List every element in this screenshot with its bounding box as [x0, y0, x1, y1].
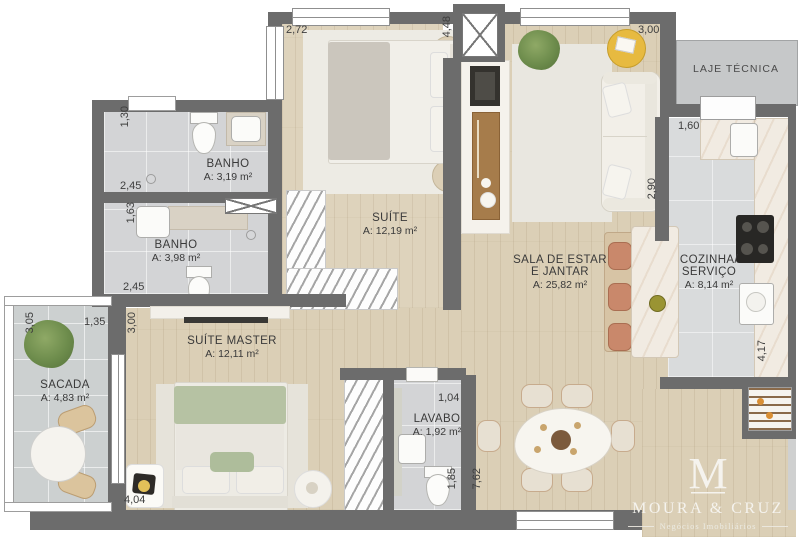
sacada-sliding-door — [111, 354, 125, 484]
room-name: SACADA — [15, 379, 115, 391]
banho1-sink — [231, 116, 261, 142]
dimension-label: 1,35 — [84, 316, 105, 328]
master-accent-pillow — [210, 452, 254, 472]
table-centerpiece — [551, 430, 571, 450]
dimension-label: 2,90 — [646, 178, 658, 199]
sacada-rail-bottom — [4, 502, 112, 512]
brand-name: MOURA & CRUZ — [616, 500, 800, 518]
dining-chair — [521, 384, 553, 408]
room-name: SERVIÇO — [650, 266, 768, 278]
room-label-sala: SALA DE ESTAR E JANTAR A: 25,82 m² — [490, 254, 630, 291]
brand-tagline: Negócios Imobiliários — [616, 521, 800, 531]
room-name: SUÍTE — [320, 212, 460, 224]
dimension-label: 2,45 — [120, 180, 141, 192]
sofa-armrest — [603, 72, 657, 84]
dimension-label: 4,48 — [441, 16, 453, 37]
svg-text:M: M — [688, 449, 727, 498]
washer-door — [746, 292, 766, 312]
room-area: A: 12,11 m² — [152, 348, 312, 360]
wall — [443, 58, 461, 310]
room-label-cozinha: COZINHA/ SERVIÇO A: 8,14 m² — [650, 254, 768, 291]
dimension-label: 7,62 — [471, 468, 483, 489]
island-stool — [608, 323, 632, 351]
room-label-banho1: BANHO A: 3,19 m² — [168, 158, 288, 183]
dimension-label: 4,17 — [756, 340, 768, 361]
dining-chair — [561, 384, 593, 408]
tv-cabinet-knob — [481, 178, 491, 188]
dimension-label: 1,04 — [438, 392, 459, 404]
grill-ember — [766, 412, 773, 419]
master-bed-throw — [174, 386, 286, 424]
master-headboard — [172, 496, 288, 508]
room-name: SUÍTE MASTER — [152, 335, 312, 347]
room-label-suite: SUÍTE A: 12,19 m² — [320, 212, 460, 237]
room-name: SALA DE ESTAR — [490, 254, 630, 266]
wall — [383, 380, 394, 510]
banho1-window — [128, 96, 176, 111]
sacada-rail-left — [4, 296, 14, 512]
wall — [788, 104, 796, 390]
brand-tagline-text: Negócios Imobiliários — [660, 521, 757, 531]
island-plant-bowl — [649, 295, 666, 312]
wall — [340, 368, 466, 380]
duct-shaft-symbol — [462, 13, 498, 57]
tv-cabinet-handle — [477, 120, 479, 178]
room-name: E JANTAR — [490, 266, 630, 278]
room-area: A: 4,83 m² — [15, 392, 115, 404]
sacada-rail-top — [4, 296, 112, 306]
grill-ember — [757, 398, 764, 405]
dimension-label: 3,05 — [24, 312, 36, 333]
living-rug — [512, 44, 612, 222]
brand-monogram-icon: M — [682, 448, 734, 500]
room-label-laje-tecnica: LAJE TÉCNICA — [676, 63, 796, 75]
kitchen-sink — [730, 123, 758, 157]
cooktop-burner — [757, 221, 769, 233]
room-name: BANHO — [168, 158, 288, 170]
room-name: LAJE TÉCNICA — [676, 63, 796, 75]
table-cup — [540, 424, 547, 431]
wall — [92, 100, 104, 204]
master-wardrobe — [344, 378, 385, 512]
room-label-suite-master: SUÍTE MASTER A: 12,11 m² — [152, 335, 312, 360]
banho2-cabinet — [225, 198, 277, 214]
living-plant — [518, 30, 560, 70]
dimension-label: 1,30 — [119, 106, 131, 127]
nightstand-right-decor — [306, 482, 318, 494]
room-area: A: 12,19 m² — [320, 225, 460, 237]
tv-screen-inner — [475, 72, 495, 100]
room-name: BANHO — [116, 239, 236, 251]
floor-plan: BANHO A: 3,19 m² BANHO A: 3,98 m² SUÍTE … — [0, 0, 800, 537]
brand-logo: M MOURA & CRUZ Negócios Imobiliários — [616, 448, 800, 536]
room-area: A: 3,98 m² — [116, 252, 236, 264]
table-cup — [570, 448, 577, 455]
room-label-banho2: BANHO A: 3,98 m² — [116, 239, 236, 264]
room-area: A: 25,82 m² — [490, 279, 630, 291]
wall — [92, 203, 104, 306]
dining-chair — [477, 420, 501, 452]
sacada-table — [30, 426, 86, 482]
dimension-label: 2,72 — [286, 24, 307, 36]
room-area: A: 3,19 m² — [168, 171, 288, 183]
tagline-rule — [762, 526, 788, 527]
kitchen-island — [631, 226, 679, 358]
sofa-seam — [603, 136, 647, 137]
room-area: A: 1,92 m² — [394, 426, 480, 438]
living-window — [520, 8, 630, 26]
dimension-label: 4,04 — [124, 494, 145, 506]
suite-side-window — [266, 26, 284, 100]
master-tv — [184, 317, 268, 323]
room-label-sacada: SACADA A: 4,83 m² — [15, 379, 115, 404]
cooktop-burner — [742, 222, 752, 232]
sofa-armrest — [603, 198, 657, 210]
banho1-shower-drain — [146, 174, 156, 184]
table-cup — [574, 422, 581, 429]
lavabo-sink — [398, 434, 426, 464]
dimension-label: 3,00 — [638, 24, 659, 36]
dimension-label: 1,60 — [678, 120, 699, 132]
suite-bed-blanket — [328, 42, 390, 160]
room-name: COZINHA/ — [650, 254, 768, 266]
room-area: A: 8,14 m² — [650, 279, 768, 291]
dimension-label: 1,85 — [446, 468, 458, 489]
cooktop-burner — [758, 244, 768, 254]
wall — [660, 12, 676, 106]
dining-window — [516, 511, 614, 530]
dimension-label: 3,00 — [126, 312, 138, 333]
nightstand-decor-ball — [138, 480, 150, 492]
dimension-label: 2,45 — [123, 281, 144, 293]
tagline-rule — [628, 526, 654, 527]
wall — [461, 375, 476, 510]
table-cup — [534, 446, 541, 453]
banho2-sink — [136, 206, 170, 238]
banho2-shower-drain — [246, 230, 256, 240]
tv-cabinet-knob — [480, 192, 496, 208]
laje-condenser — [700, 96, 756, 120]
room-label-lavabo: LAVABO A: 1,92 m² — [394, 413, 480, 438]
dimension-label: 1,63 — [125, 202, 137, 223]
lavabo-door — [406, 367, 438, 382]
room-name: LAVABO — [394, 413, 480, 425]
grill — [748, 387, 792, 431]
